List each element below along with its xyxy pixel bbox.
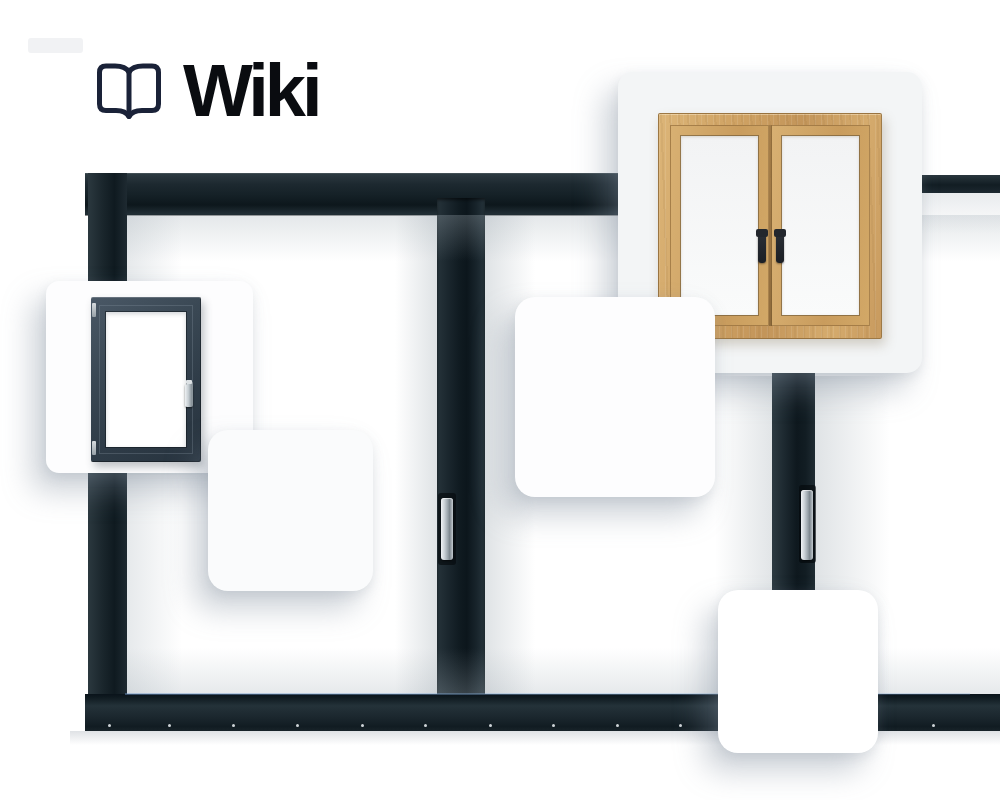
page-title: Wiki — [183, 54, 318, 128]
wiki-logo[interactable]: Wiki — [93, 52, 333, 127]
card-blank-1[interactable] — [208, 430, 373, 591]
window-handle-icon — [758, 233, 766, 263]
wooden-window-meeting-stile — [769, 125, 772, 326]
window-handle-icon — [776, 233, 784, 263]
anthracite-window-photo — [91, 297, 201, 462]
wooden-window-glass — [681, 136, 758, 315]
sill-screw-icon — [108, 724, 111, 727]
window-handle-icon — [185, 384, 193, 407]
anthracite-window-glass — [106, 312, 186, 447]
window-hinge-icon — [92, 303, 96, 317]
door-frame-top-rail-right — [918, 175, 1000, 193]
sill-screw-icon — [489, 724, 492, 727]
sill-screw-icon — [679, 724, 682, 727]
glass-shading-center-left — [395, 215, 437, 694]
page-background: Wiki — [0, 0, 1000, 800]
sill-screw-icon — [552, 724, 555, 727]
sill-screw-icon — [232, 724, 235, 727]
window-hinge-icon — [92, 441, 96, 455]
sill-screw-icon — [616, 724, 619, 727]
sill-screw-icon — [168, 724, 171, 727]
open-book-icon — [95, 62, 163, 122]
door-center-stile — [437, 198, 485, 694]
wooden-sash-right — [771, 125, 870, 326]
sill-screw-icon — [424, 724, 427, 727]
sill-screw-icon — [361, 724, 364, 727]
sill-screw-icon — [296, 724, 299, 727]
wooden-window-glass — [782, 136, 859, 315]
card-blank-3[interactable] — [718, 590, 878, 753]
card-blank-2[interactable] — [515, 297, 715, 497]
glass-shading-top-right — [922, 193, 1000, 233]
sill-screw-icon — [932, 724, 935, 727]
door-handle-chrome-icon-right — [801, 490, 813, 560]
door-handle-chrome-icon — [441, 498, 453, 560]
wooden-sash-left — [670, 125, 769, 326]
